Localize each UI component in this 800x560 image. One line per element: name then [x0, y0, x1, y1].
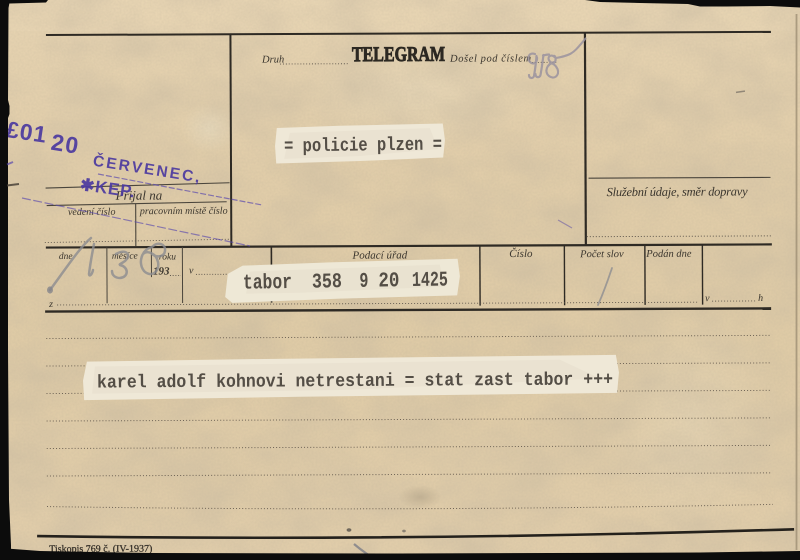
svg-text:20: 20	[378, 270, 399, 293]
svg-text:Došel pod číslem: Došel pod číslem	[449, 53, 531, 64]
svg-text:v: v	[705, 293, 710, 304]
svg-text:Číslo: Číslo	[509, 248, 533, 260]
svg-text:Podán dne: Podán dne	[645, 249, 692, 260]
svg-text:20: 20	[49, 129, 81, 159]
svg-text:TELEGRAM: TELEGRAM	[352, 42, 445, 66]
svg-text:roku: roku	[159, 252, 176, 262]
svg-text:358: 358	[312, 271, 342, 294]
svg-text:Služební údaje, směr dopravy: Služební údaje, směr dopravy	[607, 184, 748, 199]
svg-text:Počet slov: Počet slov	[579, 249, 624, 260]
svg-text:h: h	[758, 293, 763, 304]
svg-text:karel adolf kohnovi netrestani: karel adolf kohnovi netrestani = stat za…	[97, 369, 613, 393]
svg-text:= policie plzen =: = policie plzen =	[284, 133, 442, 157]
svg-text:z: z	[48, 299, 53, 310]
svg-text:9: 9	[359, 271, 368, 294]
svg-text:pracovním místě číslo: pracovním místě číslo	[139, 206, 228, 217]
svg-text:1425: 1425	[412, 269, 448, 293]
svg-text:tabor: tabor	[243, 272, 292, 296]
svg-text:v: v	[189, 265, 194, 276]
svg-text:Podací úřad: Podací úřad	[352, 249, 408, 261]
